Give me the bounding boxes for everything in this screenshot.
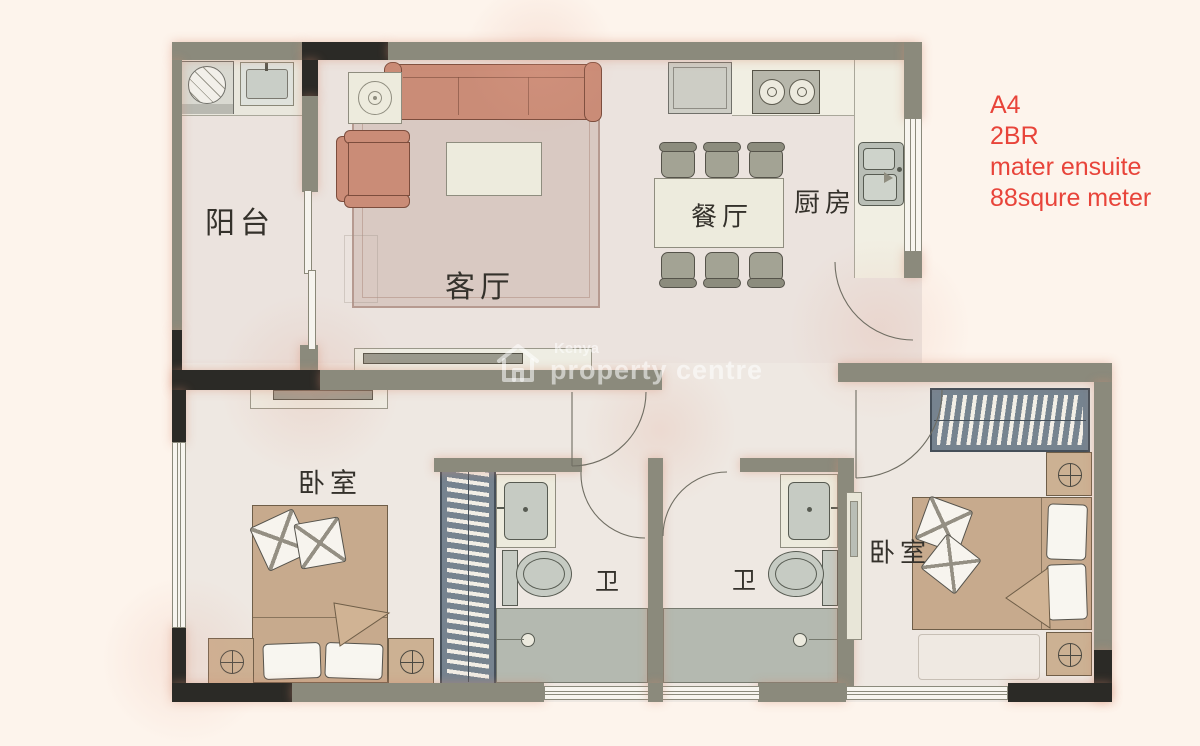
stove: [752, 70, 820, 114]
wall-segment: [648, 458, 663, 686]
room-label-living: 客厅: [445, 262, 515, 306]
dining-chair: [749, 148, 783, 178]
room-label-bedroom-left: 卧室: [298, 462, 362, 501]
room-label-dining: 餐厅: [691, 197, 753, 234]
pillow: [324, 642, 383, 680]
wall-segment: [302, 96, 318, 192]
fridge-inner-line: [673, 67, 727, 109]
toilet-bowl-inner: [775, 558, 817, 590]
pillow: [1046, 563, 1088, 620]
annotation-unit-code: A4: [990, 90, 1151, 121]
door-leaf: [846, 492, 862, 640]
dining-chair: [661, 252, 695, 282]
faucet-icon: [523, 507, 528, 512]
faucet-icon: [807, 507, 812, 512]
bench-outline: [918, 634, 1040, 680]
lamp-icon: [220, 650, 244, 674]
toilet-bowl: [768, 551, 824, 597]
annotation-bedrooms: 2BR: [990, 121, 1151, 152]
bathroom-sink: [780, 474, 838, 548]
room-label-bath-right: 卫: [732, 561, 756, 596]
dining-chair: [749, 252, 783, 282]
lamp-icon: [400, 650, 424, 674]
wall-segment: [648, 683, 663, 702]
room-label-kitchen: 厨房: [794, 183, 856, 220]
wall-segment: [904, 42, 922, 120]
washing-machine: [178, 61, 234, 114]
drain-icon: [521, 633, 535, 647]
nightstand: [208, 638, 254, 684]
door-leaf-panel: [850, 501, 858, 557]
bathroom-sink: [496, 474, 556, 548]
kitchen-sink: [858, 142, 904, 206]
faucet-icon: [897, 167, 902, 172]
sofa-seat-divider: [528, 77, 529, 115]
nightstand: [1046, 632, 1092, 676]
cabinet-outline: [344, 235, 378, 303]
wall-segment: [388, 42, 906, 60]
annotation-ensuite: mater ensuite: [990, 152, 1151, 183]
drain-icon: [793, 633, 807, 647]
faucet-icon: [265, 63, 268, 71]
wardrobe-master: [930, 388, 1090, 452]
wall-segment: [292, 683, 544, 702]
balcony-sink-basin: [246, 69, 288, 99]
drain-line: [809, 639, 838, 640]
wall-segment: [740, 458, 838, 472]
wall-corner: [302, 42, 388, 60]
armchair: [336, 130, 412, 208]
annotation-area: 88squre meter: [990, 183, 1151, 214]
fridge: [668, 62, 732, 114]
toilet-bowl: [516, 551, 572, 597]
wall-segment: [904, 250, 922, 278]
sofa-arm: [584, 62, 602, 122]
room-label-master-bedroom: 卧室: [869, 533, 931, 570]
balcony-sink: [240, 62, 294, 106]
room-label-bath-left: 卫: [595, 562, 619, 597]
toilet-tank: [822, 550, 838, 606]
bed: [912, 497, 1092, 630]
plan-annotation: A4 2BR mater ensuite 88squre meter: [990, 90, 1151, 214]
wall-corner: [172, 683, 292, 702]
dining-chair: [661, 148, 695, 178]
sink-bowl: [863, 148, 895, 170]
nightstand: [1046, 452, 1092, 496]
lamp-icon: [1058, 643, 1082, 667]
burner-icon: [759, 79, 785, 105]
pillow: [262, 642, 321, 680]
dining-chair: [705, 252, 739, 282]
side-table: [348, 72, 402, 124]
wall-corner: [172, 370, 320, 390]
side-table-dot: [373, 96, 377, 100]
coffee-table: [446, 142, 542, 196]
window: [172, 442, 186, 628]
window: [846, 686, 1008, 700]
wall-segment: [1094, 382, 1112, 652]
sofa: [388, 64, 600, 120]
sofa-back-line: [403, 77, 585, 78]
dining-chair: [705, 148, 739, 178]
room-label-balcony: 阳台: [205, 198, 275, 242]
lamp-icon: [1058, 463, 1082, 487]
faucet-icon: [497, 507, 505, 509]
sofa-seat-divider: [458, 77, 459, 115]
window: [904, 118, 922, 252]
wall-corner: [172, 390, 186, 444]
sliding-door: [308, 270, 316, 350]
armchair-seat: [348, 142, 410, 196]
wall-corner: [172, 626, 186, 686]
sheet-line: [253, 617, 387, 618]
shower-area: [663, 608, 838, 683]
washer-control-panel: [179, 104, 233, 114]
wall-segment: [838, 363, 1112, 382]
tv-bedroom: [273, 390, 373, 400]
drain-line: [496, 639, 524, 640]
wall-segment: [320, 370, 662, 390]
sink-bowl: [863, 174, 897, 201]
wall-corner: [302, 60, 318, 96]
wardrobe-left: [440, 458, 496, 686]
wall-segment: [434, 458, 582, 472]
cushion: [293, 516, 346, 569]
wall-segment: [758, 683, 846, 702]
shower-area: [496, 608, 648, 683]
toilet-bowl-inner: [523, 558, 565, 590]
sliding-door: [304, 190, 312, 274]
tv-living: [363, 353, 523, 364]
floor-plan: 阳台 客厅 餐厅 厨房 卧室 卫 卫 卧室 A4 2BR mater ensui…: [0, 0, 1200, 746]
wall-segment: [172, 42, 302, 60]
bed: [252, 505, 388, 683]
sheet-line: [1041, 498, 1042, 629]
wall-segment: [172, 60, 182, 330]
washer-drum: [188, 66, 226, 104]
pillow: [1046, 503, 1088, 560]
wall-corner: [1008, 683, 1112, 702]
burner-icon: [789, 79, 815, 105]
armchair-arm: [344, 194, 410, 208]
nightstand: [388, 638, 434, 684]
